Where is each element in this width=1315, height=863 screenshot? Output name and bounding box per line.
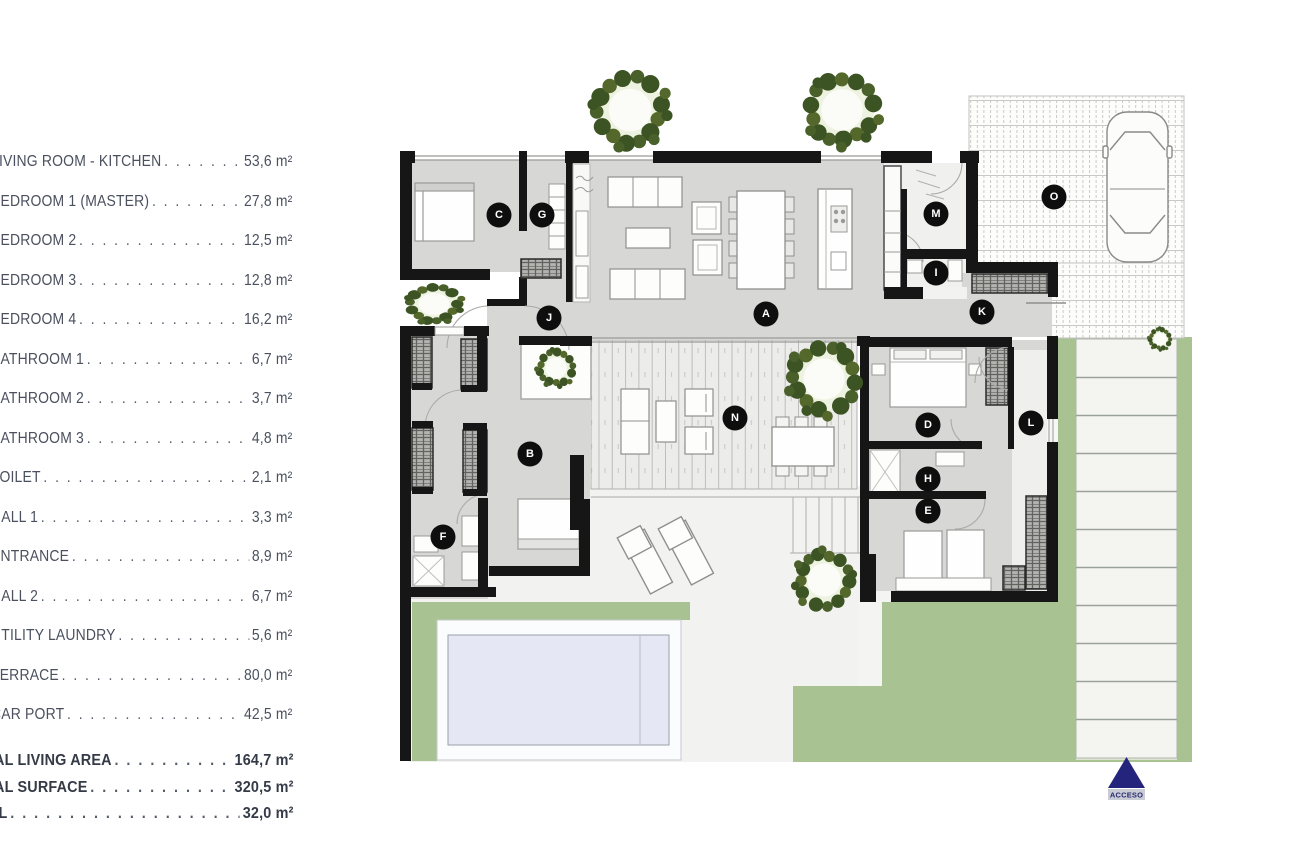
svg-text:K: K bbox=[978, 306, 986, 318]
svg-text:O: O bbox=[1050, 191, 1059, 203]
svg-text:B: B bbox=[526, 448, 534, 460]
svg-text:M: M bbox=[931, 208, 940, 220]
svg-text:L: L bbox=[1028, 417, 1035, 429]
svg-text:C: C bbox=[495, 209, 503, 221]
svg-text:A: A bbox=[762, 308, 770, 320]
svg-text:D: D bbox=[924, 419, 932, 431]
svg-text:H: H bbox=[924, 473, 932, 485]
svg-text:F: F bbox=[440, 531, 447, 543]
svg-text:E: E bbox=[924, 505, 931, 517]
svg-text:ACCESO: ACCESO bbox=[1110, 791, 1143, 800]
svg-text:N: N bbox=[731, 412, 739, 424]
svg-text:I: I bbox=[934, 267, 937, 279]
svg-text:J: J bbox=[546, 312, 552, 324]
svg-text:G: G bbox=[538, 209, 547, 221]
